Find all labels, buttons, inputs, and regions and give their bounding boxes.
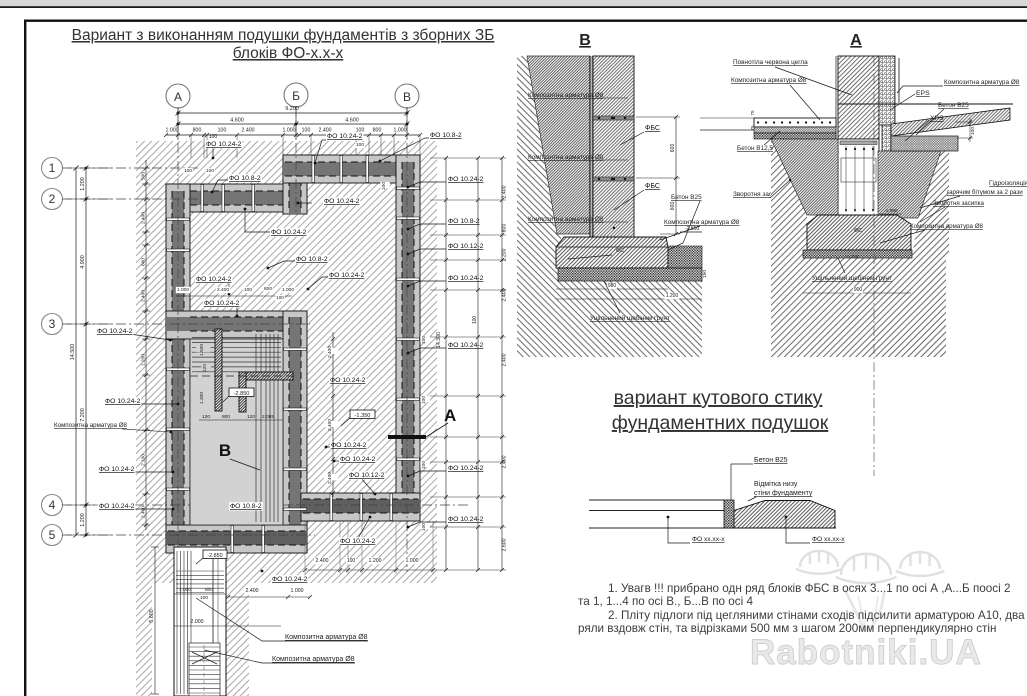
svg-text:Композитна арматура Ø8: Композитна арматура Ø8 bbox=[528, 216, 604, 223]
svg-text:1.200: 1.200 bbox=[80, 513, 86, 527]
svg-text:100: 100 bbox=[472, 316, 478, 325]
svg-text:5: 5 bbox=[49, 528, 56, 542]
svg-text:100: 100 bbox=[244, 287, 252, 293]
svg-text:100: 100 bbox=[356, 142, 364, 148]
svg-text:800: 800 bbox=[373, 128, 382, 134]
svg-text:2.400: 2.400 bbox=[502, 353, 508, 366]
svg-text:ФО 10.24-2: ФО 10.24-2 bbox=[272, 576, 308, 583]
svg-text:Композитна арматура Ø8: Композитна арматура Ø8 bbox=[285, 634, 368, 641]
svg-text:2.400: 2.400 bbox=[316, 558, 329, 564]
svg-text:XPS: XPS bbox=[930, 115, 944, 122]
svg-text:120: 120 bbox=[202, 364, 208, 372]
svg-text:2.085: 2.085 bbox=[262, 414, 274, 420]
svg-text:2.600: 2.600 bbox=[502, 538, 508, 551]
svg-text:Відмітка низу: Відмітка низу bbox=[754, 480, 798, 488]
svg-text:А: А bbox=[444, 406, 456, 425]
svg-text:EPS: EPS bbox=[916, 90, 930, 97]
svg-text:75: 75 bbox=[750, 110, 755, 116]
svg-text:вариант кутового стику: вариант кутового стику bbox=[614, 387, 823, 409]
svg-text:Композитна арматура Ø8: Композитна арматура Ø8 bbox=[910, 223, 984, 230]
svg-text:2.400: 2.400 bbox=[141, 290, 147, 302]
svg-text:4.600: 4.600 bbox=[230, 118, 244, 124]
svg-text:В: В bbox=[579, 32, 591, 49]
svg-text:2.400: 2.400 bbox=[141, 506, 147, 518]
svg-text:ФО 10.8-2: ФО 10.8-2 bbox=[448, 218, 480, 225]
svg-text:100: 100 bbox=[218, 128, 227, 134]
svg-text:ряли вздовж стін, та відрізкам: ряли вздовж стін, та відрізками 500 мм з… bbox=[578, 622, 996, 635]
svg-text:Бетон В25: Бетон В25 bbox=[938, 102, 969, 109]
svg-text:4.600: 4.600 bbox=[345, 118, 359, 124]
svg-text:ФС: ФС bbox=[616, 248, 624, 254]
svg-text:2: 2 bbox=[49, 192, 56, 206]
svg-text:2. Пліту підлоги під цегляними: 2. Пліту підлоги під цегляними стінами с… bbox=[608, 609, 1025, 622]
svg-text:4.900: 4.900 bbox=[80, 255, 86, 269]
svg-text:5.600: 5.600 bbox=[149, 609, 155, 622]
svg-text:Композитна арматура Ø8: Композитна арматура Ø8 bbox=[731, 77, 807, 84]
svg-text:1.000: 1.000 bbox=[179, 587, 191, 593]
svg-text:ФБС: ФБС bbox=[645, 125, 660, 132]
svg-text:800: 800 bbox=[264, 286, 272, 292]
svg-text:2.400: 2.400 bbox=[242, 128, 255, 134]
svg-text:ФО 10.8-2: ФО 10.8-2 bbox=[296, 256, 328, 263]
svg-text:1.000: 1.000 bbox=[291, 588, 304, 594]
svg-text:1.000: 1.000 bbox=[406, 558, 419, 564]
svg-text:1.000: 1.000 bbox=[394, 128, 407, 134]
svg-text:1.200: 1.200 bbox=[502, 248, 508, 261]
svg-text:ФО 10.24-2: ФО 10.24-2 bbox=[329, 272, 365, 279]
svg-text:ФО 10.24-2: ФО 10.24-2 bbox=[99, 503, 135, 510]
svg-text:ФО 10.24-2: ФО 10.24-2 bbox=[327, 133, 363, 140]
svg-text:1.000: 1.000 bbox=[166, 128, 179, 134]
svg-text:7.200: 7.200 bbox=[80, 408, 86, 422]
svg-text:2.400: 2.400 bbox=[217, 287, 229, 293]
svg-text:2.400: 2.400 bbox=[327, 419, 333, 431]
svg-text:100: 100 bbox=[209, 134, 218, 140]
svg-text:100: 100 bbox=[200, 595, 208, 601]
svg-text:1.000: 1.000 bbox=[177, 287, 189, 293]
svg-text:Вариант з виконанням подушки ф: Вариант з виконанням подушки фундаментів… bbox=[72, 27, 495, 44]
svg-text:9.200: 9.200 bbox=[285, 106, 299, 112]
svg-text:Повнотіла червона цегла: Повнотіла червона цегла bbox=[733, 58, 808, 66]
svg-text:3: 3 bbox=[49, 317, 56, 331]
svg-text:та 1, 1...4 по осі В., Б...В п: та 1, 1...4 по осі В., Б...В по осі 4 bbox=[578, 595, 753, 608]
svg-text:800: 800 bbox=[193, 128, 202, 134]
svg-text:-1.350: -1.350 bbox=[355, 413, 371, 419]
svg-text:100: 100 bbox=[276, 295, 284, 300]
svg-text:14.300: 14.300 bbox=[436, 332, 442, 348]
svg-text:120: 120 bbox=[202, 414, 210, 420]
svg-text:1.200: 1.200 bbox=[666, 293, 679, 299]
svg-text:ФО 10.24-2: ФО 10.24-2 bbox=[340, 456, 376, 463]
svg-text:Композитна арматура Ø8: Композитна арматура Ø8 bbox=[528, 92, 604, 99]
svg-text:100: 100 bbox=[421, 336, 427, 344]
svg-text:100: 100 bbox=[302, 128, 311, 134]
svg-text:2.400: 2.400 bbox=[327, 472, 333, 484]
svg-text:1.200: 1.200 bbox=[141, 354, 147, 366]
svg-text:75: 75 bbox=[750, 125, 755, 131]
svg-text:800: 800 bbox=[502, 224, 508, 233]
svg-text:500: 500 bbox=[141, 172, 147, 180]
svg-text:ФО 10.8-2: ФО 10.8-2 bbox=[229, 175, 261, 182]
svg-text:Rabotniki.UA: Rabotniki.UA bbox=[750, 633, 982, 672]
svg-text:Гідроізоляція: Гідроізоляція bbox=[989, 179, 1027, 187]
svg-text:ФО 10.8-2: ФО 10.8-2 bbox=[430, 132, 462, 139]
svg-text:В: В bbox=[219, 441, 231, 460]
svg-text:1.200: 1.200 bbox=[80, 177, 86, 191]
svg-text:ФО 10.24-2: ФО 10.24-2 bbox=[340, 538, 376, 545]
svg-text:100: 100 bbox=[184, 168, 192, 174]
svg-text:100: 100 bbox=[421, 396, 427, 404]
svg-text:-1.350: -1.350 bbox=[845, 254, 859, 260]
svg-text:150: 150 bbox=[702, 270, 708, 278]
svg-text:800: 800 bbox=[222, 414, 230, 420]
svg-text:Зворотня засипка: Зворотня засипка bbox=[933, 200, 984, 207]
svg-text:ФО 10.8-2: ФО 10.8-2 bbox=[230, 503, 262, 510]
svg-text:2.400: 2.400 bbox=[502, 455, 508, 468]
svg-text:стіни фундаменту: стіни фундаменту bbox=[754, 489, 813, 497]
svg-text:4: 4 bbox=[49, 498, 56, 512]
svg-text:-2.850: -2.850 bbox=[685, 226, 699, 232]
svg-text:ФО 10.24-2: ФО 10.24-2 bbox=[97, 328, 133, 335]
svg-text:-1.050: -1.050 bbox=[884, 208, 898, 214]
svg-text:120: 120 bbox=[247, 414, 255, 420]
svg-text:2.400: 2.400 bbox=[502, 185, 508, 198]
svg-text:-2.850: -2.850 bbox=[207, 553, 222, 559]
svg-text:Композитна арматура Ø8: Композитна арматура Ø8 bbox=[664, 219, 740, 226]
svg-text:ФО 10.24-2: ФО 10.24-2 bbox=[331, 442, 367, 449]
svg-text:900: 900 bbox=[854, 287, 863, 293]
svg-text:Композитна арматура Ø8: Композитна арматура Ø8 bbox=[54, 422, 128, 429]
svg-text:2.400: 2.400 bbox=[141, 212, 147, 224]
svg-text:100: 100 bbox=[347, 558, 356, 564]
svg-text:ФО 10.24-2: ФО 10.24-2 bbox=[105, 398, 141, 405]
svg-text:100: 100 bbox=[970, 127, 976, 135]
svg-text:А: А bbox=[850, 32, 862, 49]
svg-text:Композитна арматура Ø8: Композитна арматура Ø8 bbox=[944, 79, 1020, 86]
svg-text:блоків ФО-х.х-х: блоків ФО-х.х-х bbox=[233, 45, 344, 62]
svg-text:1.500: 1.500 bbox=[199, 344, 205, 356]
svg-text:100: 100 bbox=[206, 168, 214, 174]
svg-text:Бетон В25: Бетон В25 bbox=[671, 194, 702, 201]
svg-text:Б: Б bbox=[292, 89, 300, 103]
svg-text:Композитна арматура Ø8: Композитна арматура Ø8 bbox=[272, 656, 355, 663]
svg-text:800: 800 bbox=[205, 587, 213, 593]
svg-text:14.500: 14.500 bbox=[70, 344, 76, 361]
svg-text:600: 600 bbox=[670, 202, 676, 211]
svg-text:1.200: 1.200 bbox=[369, 558, 382, 564]
svg-text:-2.850: -2.850 bbox=[234, 391, 250, 397]
svg-text:А: А bbox=[174, 90, 182, 104]
svg-text:ФО 10.24-2: ФО 10.24-2 bbox=[99, 466, 135, 473]
svg-text:2.000: 2.000 bbox=[191, 619, 204, 625]
svg-text:1.000: 1.000 bbox=[282, 287, 294, 293]
svg-text:600: 600 bbox=[670, 144, 676, 153]
svg-text:ФО 10.24-2: ФО 10.24-2 bbox=[206, 141, 242, 148]
svg-text:980: 980 bbox=[608, 283, 617, 289]
svg-text:100: 100 bbox=[421, 461, 427, 469]
svg-text:1.000: 1.000 bbox=[283, 128, 296, 134]
svg-text:100: 100 bbox=[421, 523, 427, 531]
svg-text:Ущільнений щебінем ґрунт: Ущільнений щебінем ґрунт bbox=[590, 314, 670, 322]
svg-text:2.400: 2.400 bbox=[327, 346, 333, 358]
svg-text:Бетон В12,5: Бетон В12,5 bbox=[737, 145, 773, 152]
svg-text:2.100: 2.100 bbox=[141, 454, 147, 466]
svg-text:ФС: ФС bbox=[854, 228, 862, 234]
svg-text:1. Увагв !!! прибрано одн ряд: 1. Увагв !!! прибрано одн ряд блоків ФБС… bbox=[608, 582, 1010, 595]
svg-text:1: 1 bbox=[49, 161, 56, 175]
svg-text:ФО хх.хх-х: ФО хх.хх-х bbox=[812, 536, 845, 543]
svg-text:ФО 10.24-2: ФО 10.24-2 bbox=[196, 276, 232, 283]
svg-text:В: В bbox=[403, 90, 411, 104]
svg-text:ФО 10.12-2: ФО 10.12-2 bbox=[349, 472, 385, 479]
svg-text:Ущільнений щебінем ґрунт: Ущільнений щебінем ґрунт bbox=[812, 274, 892, 282]
svg-text:ФО 10.24-2: ФО 10.24-2 bbox=[324, 198, 360, 205]
svg-text:100: 100 bbox=[381, 182, 387, 190]
svg-text:600: 600 bbox=[141, 258, 147, 266]
svg-text:2.400: 2.400 bbox=[246, 588, 259, 594]
svg-text:ФО 10.24-2: ФО 10.24-2 bbox=[204, 300, 240, 307]
svg-text:гарячим бітумом за 2 рази: гарячим бітумом за 2 рази bbox=[947, 189, 1023, 196]
svg-text:ФО 10.24-2: ФО 10.24-2 bbox=[330, 377, 366, 384]
svg-text:ФБС: ФБС bbox=[645, 183, 660, 190]
svg-text:2.400: 2.400 bbox=[502, 288, 508, 301]
svg-text:фундаментних подушок: фундаментних подушок bbox=[612, 412, 829, 434]
svg-text:ФО хх.хх-х: ФО хх.хх-х bbox=[692, 536, 725, 543]
svg-text:Бетон В25: Бетон В25 bbox=[754, 457, 788, 464]
svg-text:ФО 10.24-2: ФО 10.24-2 bbox=[271, 229, 307, 236]
svg-text:Композитна арматура Ø8: Композитна арматура Ø8 bbox=[528, 154, 604, 161]
svg-text:1.300: 1.300 bbox=[199, 392, 205, 404]
